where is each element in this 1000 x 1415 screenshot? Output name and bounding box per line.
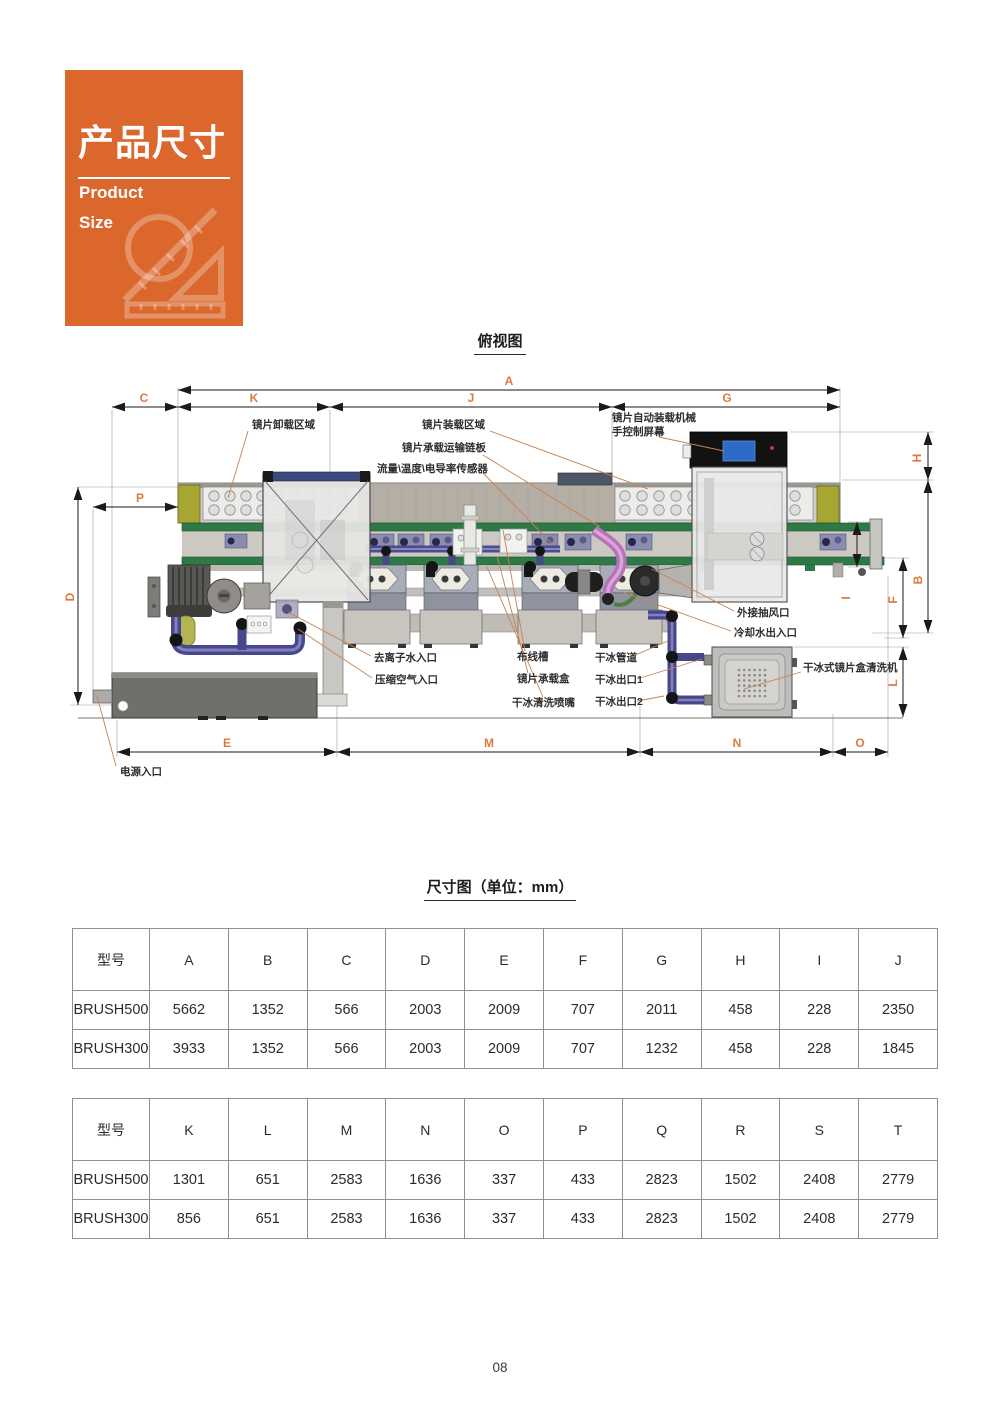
- col-B: B: [228, 929, 307, 991]
- cell: 2003: [386, 991, 465, 1030]
- cell: 2823: [622, 1161, 701, 1200]
- model-name: BRUSH300: [73, 1030, 150, 1069]
- cell: 337: [465, 1161, 544, 1200]
- col-R: R: [701, 1099, 780, 1161]
- label-load-area: 镜片装载区域: [422, 418, 485, 431]
- cell: 2583: [307, 1200, 386, 1239]
- size-table-title-wrap: 尺寸图（单位：mm）: [0, 876, 1000, 901]
- col-F: F: [543, 929, 622, 991]
- cell: 228: [780, 1030, 859, 1069]
- cell: 1352: [228, 1030, 307, 1069]
- size-table-title: 尺寸图（单位：mm）: [424, 876, 577, 901]
- cell: 1352: [228, 991, 307, 1030]
- label-unload-area: 镜片卸载区域: [252, 418, 315, 431]
- cell: 566: [307, 1030, 386, 1069]
- cell: 2011: [622, 991, 701, 1030]
- label-ice-cleaner: 干冰式镜片盒清洗机: [803, 661, 898, 674]
- cell: 458: [701, 1030, 780, 1069]
- label-robot-line2: 手控制屏幕: [612, 425, 665, 438]
- model-name: BRUSH300: [73, 1200, 150, 1239]
- cell: 2408: [780, 1200, 859, 1239]
- dim-D: D: [63, 592, 77, 601]
- cell: 1845: [859, 1030, 938, 1069]
- col-M: M: [307, 1099, 386, 1161]
- dim-E: E: [223, 736, 231, 750]
- cell: 2779: [859, 1161, 938, 1200]
- cell: 651: [228, 1161, 307, 1200]
- cell: 337: [465, 1200, 544, 1239]
- label-chain-plate: 镜片承载运输链板: [402, 441, 486, 454]
- label-robot-line1: 镜片自动装载机械: [612, 411, 696, 424]
- model-name: BRUSH500: [73, 991, 150, 1030]
- loader-cabinet: [692, 467, 787, 602]
- header-card: 产品尺寸 Product Size: [65, 70, 243, 326]
- col-P: P: [543, 1099, 622, 1161]
- right-end-block: [817, 486, 839, 523]
- cell: 433: [543, 1200, 622, 1239]
- col-C: C: [307, 929, 386, 991]
- col-L: L: [228, 1099, 307, 1161]
- dim-J: J: [468, 391, 475, 405]
- col-A: A: [150, 929, 229, 991]
- label-cooling-water: 冷却水出入口: [734, 626, 797, 639]
- dim-O: O: [855, 736, 864, 750]
- dimension-table-k-t: 型号 K L M N O P Q R S T BRUSH500 1301 651…: [72, 1098, 938, 1239]
- figure-title-wrap: 俯视图: [0, 330, 1000, 355]
- col-Q: Q: [622, 1099, 701, 1161]
- cell: 566: [307, 991, 386, 1030]
- cell: 2350: [859, 991, 938, 1030]
- cell: 2823: [622, 1200, 701, 1239]
- product-size-page: 产品尺寸 Product Size: [0, 0, 1000, 1415]
- cell: 2009: [465, 1030, 544, 1069]
- card-divider: [78, 177, 230, 179]
- dim-C: C: [140, 391, 149, 405]
- cell: 2583: [307, 1161, 386, 1200]
- model-name: BRUSH500: [73, 1161, 150, 1200]
- cell: 2779: [859, 1200, 938, 1239]
- label-ice-outlet1: 干冰出口1: [595, 673, 643, 686]
- cell: 2003: [386, 1030, 465, 1069]
- left-end-block: [178, 485, 200, 523]
- col-model: 型号: [73, 929, 150, 991]
- dim-H: H: [910, 454, 924, 463]
- table-row: BRUSH300 3933 1352 566 2003 2009 707 123…: [73, 1030, 938, 1069]
- transparent-cover: [263, 471, 370, 602]
- cell: 458: [701, 991, 780, 1030]
- cell: 1502: [701, 1200, 780, 1239]
- cell: 1502: [701, 1161, 780, 1200]
- col-O: O: [465, 1099, 544, 1161]
- label-ice-pipe: 干冰管道: [595, 651, 637, 664]
- label-exhaust: 外接抽风口: [736, 606, 790, 619]
- dim-N: N: [733, 736, 742, 750]
- cell: 228: [780, 991, 859, 1030]
- label-ice-nozzle: 干冰清洗喷嘴: [512, 696, 575, 709]
- dim-B: B: [911, 575, 925, 584]
- power-box: [93, 673, 317, 720]
- col-S: S: [780, 1099, 859, 1161]
- control-panel: [683, 432, 787, 468]
- col-G: G: [622, 929, 701, 991]
- label-compressed-air: 压缩空气入口: [375, 673, 438, 686]
- ruler-icon: [119, 202, 237, 320]
- touch-screen: [723, 441, 755, 461]
- dim-P: P: [136, 491, 144, 505]
- col-model: 型号: [73, 1099, 150, 1161]
- cell: 2408: [780, 1161, 859, 1200]
- col-I: I: [780, 929, 859, 991]
- cell: 5662: [150, 991, 229, 1030]
- machine-drawing: [93, 432, 884, 720]
- dim-K: K: [250, 391, 259, 405]
- dry-ice-cleaner: [704, 647, 797, 717]
- label-cable-tray: 布线槽: [517, 650, 549, 663]
- page-title: 产品尺寸: [78, 114, 226, 166]
- cell: 1301: [150, 1161, 229, 1200]
- dim-L: L: [886, 679, 900, 686]
- top-view-diagram: A C K J G P D E M N O H B I F L: [60, 368, 940, 798]
- cell: 707: [543, 991, 622, 1030]
- dim-F: F: [886, 596, 900, 603]
- cell: 433: [543, 1161, 622, 1200]
- cell: 707: [543, 1030, 622, 1069]
- label-lens-box: 镜片承载盒: [517, 672, 570, 685]
- label-sensor: 流量\温度\电导率传感器: [377, 462, 488, 475]
- table-row: BRUSH500 5662 1352 566 2003 2009 707 201…: [73, 991, 938, 1030]
- table-row: BRUSH500 1301 651 2583 1636 337 433 2823…: [73, 1161, 938, 1200]
- dim-G: G: [722, 391, 731, 405]
- col-T: T: [859, 1099, 938, 1161]
- cell: 1636: [386, 1161, 465, 1200]
- table-row: BRUSH300 856 651 2583 1636 337 433 2823 …: [73, 1200, 938, 1239]
- page-number: 08: [0, 1360, 1000, 1375]
- col-K: K: [150, 1099, 229, 1161]
- col-J: J: [859, 929, 938, 991]
- label-power-inlet: 电源入口: [120, 765, 162, 778]
- label-ice-outlet2: 干冰出口2: [595, 695, 643, 708]
- dimension-table-a-j: 型号 A B C D E F G H I J BRUSH500 5662 135…: [72, 928, 938, 1069]
- col-H: H: [701, 929, 780, 991]
- dim-M: M: [484, 736, 494, 750]
- cell: 1232: [622, 1030, 701, 1069]
- dim-I: I: [839, 596, 853, 599]
- cell: 856: [150, 1200, 229, 1239]
- label-di-water: 去离子水入口: [374, 651, 437, 664]
- dim-A: A: [505, 374, 514, 388]
- table-header-row: 型号 A B C D E F G H I J: [73, 929, 938, 991]
- col-N: N: [386, 1099, 465, 1161]
- cell: 2009: [465, 991, 544, 1030]
- figure-title: 俯视图: [474, 330, 525, 355]
- col-E: E: [465, 929, 544, 991]
- table-header-row: 型号 K L M N O P Q R S T: [73, 1099, 938, 1161]
- col-D: D: [386, 929, 465, 991]
- cell: 3933: [150, 1030, 229, 1069]
- page-subtitle-en-2: Size: [79, 213, 113, 233]
- sensor-module: [558, 473, 612, 485]
- page-subtitle-en-1: Product: [79, 183, 143, 203]
- cell: 651: [228, 1200, 307, 1239]
- cell: 1636: [386, 1200, 465, 1239]
